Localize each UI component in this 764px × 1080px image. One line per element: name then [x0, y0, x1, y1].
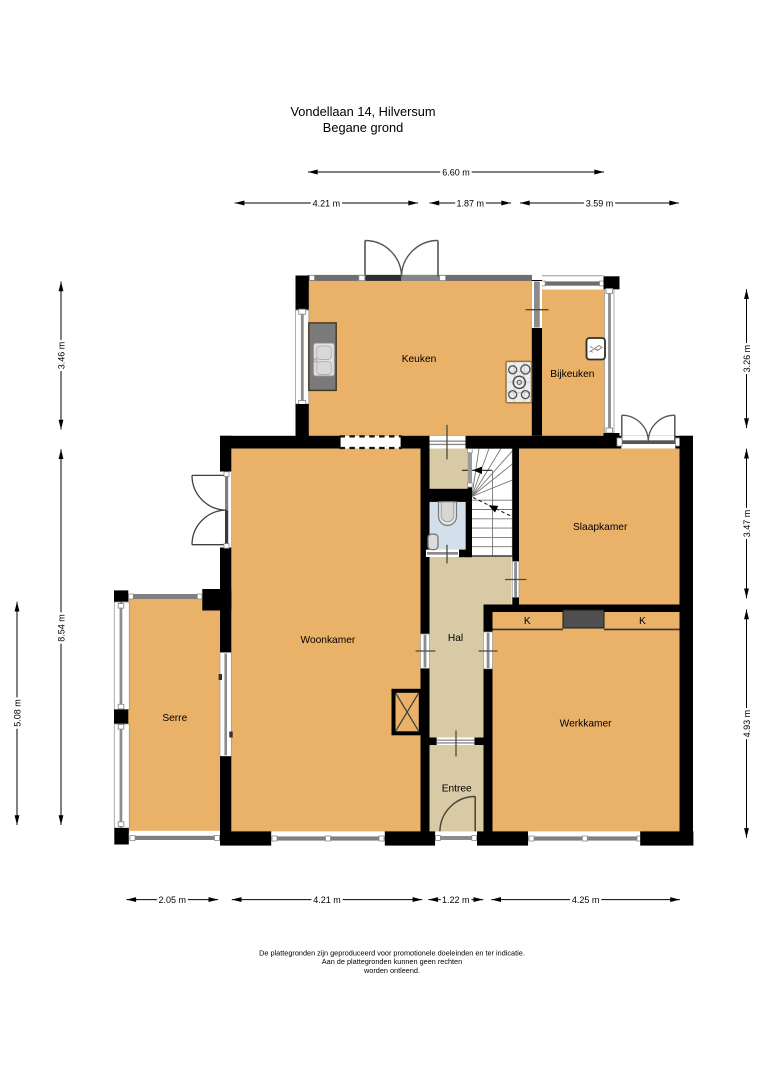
svg-text:1.22 m: 1.22 m	[442, 895, 470, 905]
svg-text:K: K	[524, 616, 531, 627]
svg-text:5.08 m: 5.08 m	[13, 699, 23, 727]
svg-text:4.93 m: 4.93 m	[742, 710, 752, 738]
svg-text:De plattegronden zijn geproduc: De plattegronden zijn geproduceerd voor …	[259, 949, 525, 958]
svg-text:K: K	[639, 616, 646, 627]
svg-text:Entree: Entree	[442, 784, 472, 795]
svg-text:6.60 m: 6.60 m	[442, 168, 470, 178]
svg-text:3.26 m: 3.26 m	[742, 345, 752, 373]
svg-text:3.46 m: 3.46 m	[57, 342, 67, 370]
svg-text:Begane grond: Begane grond	[323, 120, 403, 135]
svg-text:Slaapkamer: Slaapkamer	[573, 522, 628, 533]
svg-text:Werkkamer: Werkkamer	[560, 719, 612, 730]
svg-text:Bijkeuken: Bijkeuken	[550, 369, 594, 380]
svg-text:worden ontleend.: worden ontleend.	[363, 966, 420, 975]
svg-text:3.47 m: 3.47 m	[742, 510, 752, 538]
svg-text:Serre: Serre	[162, 713, 187, 724]
svg-text:4.21 m: 4.21 m	[313, 895, 341, 905]
svg-text:4.21 m: 4.21 m	[313, 199, 341, 209]
svg-text:3.59 m: 3.59 m	[586, 199, 614, 209]
svg-text:Hal: Hal	[448, 633, 463, 644]
svg-text:4.25 m: 4.25 m	[572, 895, 600, 905]
svg-text:Woonkamer: Woonkamer	[301, 635, 356, 646]
svg-text:Vondellaan 14, Hilversum: Vondellaan 14, Hilversum	[290, 104, 435, 119]
svg-text:Keuken: Keuken	[402, 354, 437, 365]
svg-text:1.87 m: 1.87 m	[457, 199, 485, 209]
svg-text:8.54 m: 8.54 m	[57, 614, 67, 642]
svg-text:Aan de plattegronden kunnen ge: Aan de plattegronden kunnen geen rechten	[322, 957, 462, 966]
svg-text:2.05 m: 2.05 m	[159, 895, 187, 905]
